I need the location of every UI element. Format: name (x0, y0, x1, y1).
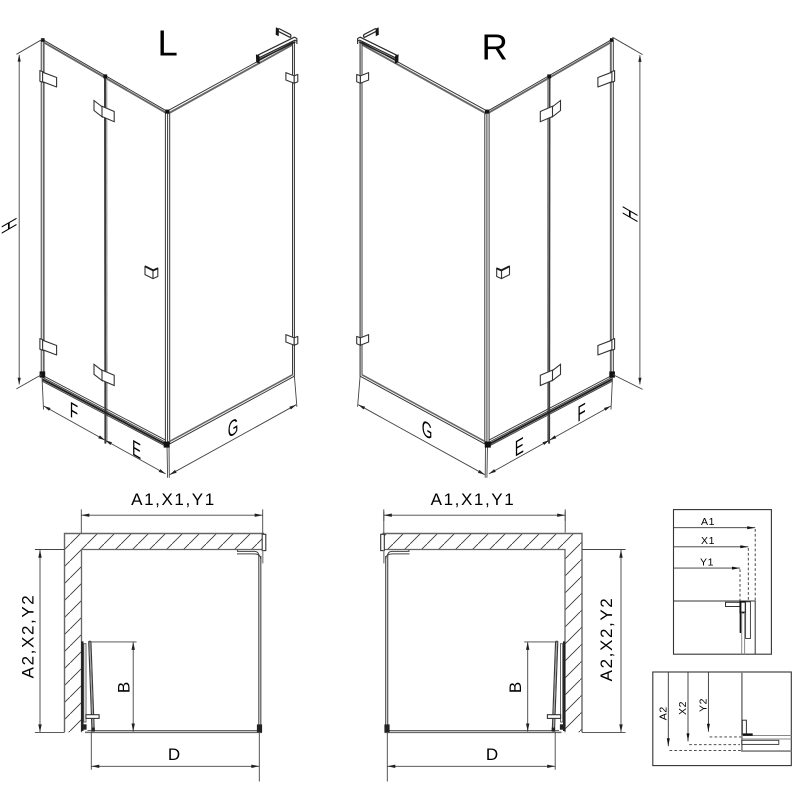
svg-text:Y2: Y2 (698, 698, 710, 712)
svg-text:H: H (619, 203, 643, 226)
svg-text:X2: X2 (677, 701, 689, 715)
svg-text:Y1: Y1 (700, 557, 714, 569)
svg-text:A2: A2 (657, 706, 669, 720)
svg-text:B: B (115, 682, 134, 693)
svg-text:F: F (70, 398, 78, 427)
svg-text:A1,X1,Y1: A1,X1,Y1 (431, 490, 516, 509)
svg-text:D: D (486, 745, 498, 764)
svg-text:B: B (506, 682, 525, 693)
svg-text:E: E (515, 433, 524, 462)
svg-text:A2,X2,Y2: A2,X2,Y2 (19, 594, 38, 679)
svg-text:A1,X1,Y1: A1,X1,Y1 (131, 490, 216, 509)
svg-text:X1: X1 (701, 535, 715, 547)
svg-text:A2,X2,Y2: A2,X2,Y2 (597, 597, 616, 682)
svg-text:F: F (577, 399, 585, 428)
svg-text:A1: A1 (701, 516, 715, 528)
svg-text:E: E (132, 436, 141, 465)
svg-text:G: G (422, 416, 433, 446)
svg-text:H: H (0, 214, 22, 237)
svg-text:L: L (158, 23, 178, 64)
svg-text:G: G (228, 414, 239, 444)
svg-text:R: R (482, 27, 508, 68)
svg-text:D: D (168, 745, 180, 764)
